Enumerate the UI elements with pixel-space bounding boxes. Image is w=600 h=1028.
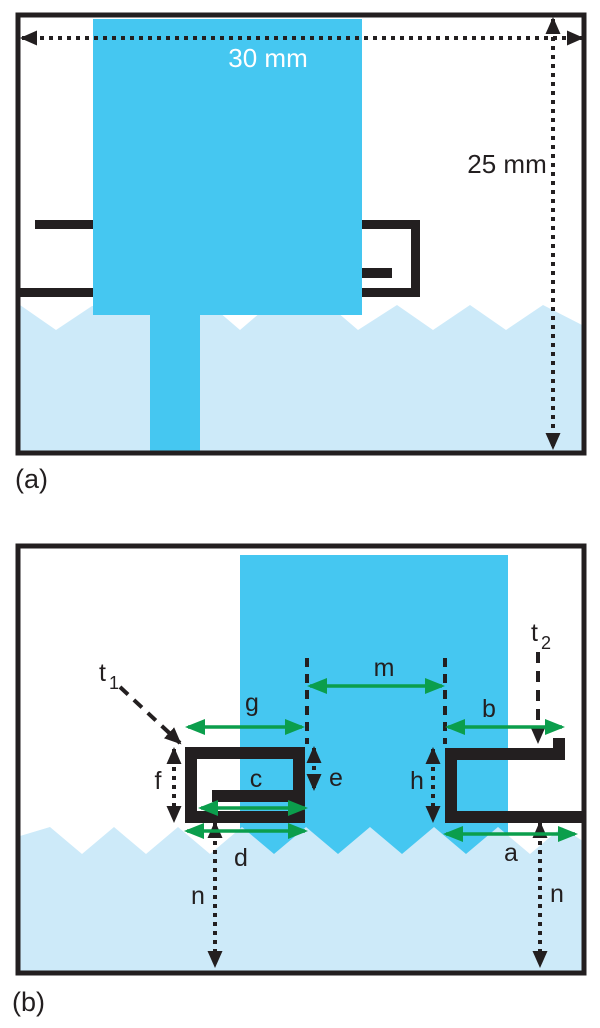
label-h: h [410, 767, 424, 795]
label-b: b [482, 695, 496, 723]
panel-b-caption: (b) [12, 987, 45, 1017]
label-f: f [155, 767, 162, 795]
ground-plane-b [20, 827, 584, 971]
label-c: c [250, 765, 263, 793]
label-n-left: n [191, 882, 205, 910]
feed-line-a [150, 315, 200, 453]
slit-a-right-side-bar [411, 220, 420, 297]
slit-b-right-top-bar [445, 748, 565, 760]
label-t2-subscript: 2 [541, 633, 551, 653]
t1-pointer-line [120, 687, 180, 743]
label-t2-base: t [531, 619, 538, 647]
slit-b-right-bottom-bar [445, 811, 586, 823]
label-a: a [504, 839, 518, 867]
slit-b-left-bottom-bar [185, 811, 305, 823]
slit-a-left-top-bar [35, 220, 93, 229]
slit-b-left-top-bar [185, 747, 305, 759]
slit-a-right-bottom-bar [362, 288, 420, 297]
antenna-geometry-figure: 30 mm 25 mm (a) [0, 0, 600, 1028]
label-e: e [329, 764, 343, 792]
panel-b: m g b c e h f d a n n t 1 t 2 (b) [12, 546, 586, 1017]
slit-a-right-tongue [362, 268, 392, 278]
label-t1: t 1 [99, 659, 119, 693]
label-g: g [245, 689, 259, 717]
label-t1-subscript: 1 [109, 673, 119, 693]
label-t2: t 2 [531, 619, 551, 653]
ground-plane-a [20, 305, 584, 452]
slit-b-right-end-stub [553, 738, 565, 748]
height-dimension-label-a: 25 mm [467, 149, 546, 179]
label-m: m [374, 654, 395, 682]
width-dimension-label-a: 30 mm [228, 43, 307, 73]
slit-a-left-bottom-bar [19, 288, 93, 297]
panel-a: 30 mm 25 mm (a) [15, 15, 584, 494]
label-t1-base: t [99, 659, 106, 687]
radiating-patch-b [240, 555, 508, 855]
panel-a-caption: (a) [15, 464, 48, 494]
label-n-right: n [550, 880, 564, 908]
label-d: d [234, 844, 248, 872]
